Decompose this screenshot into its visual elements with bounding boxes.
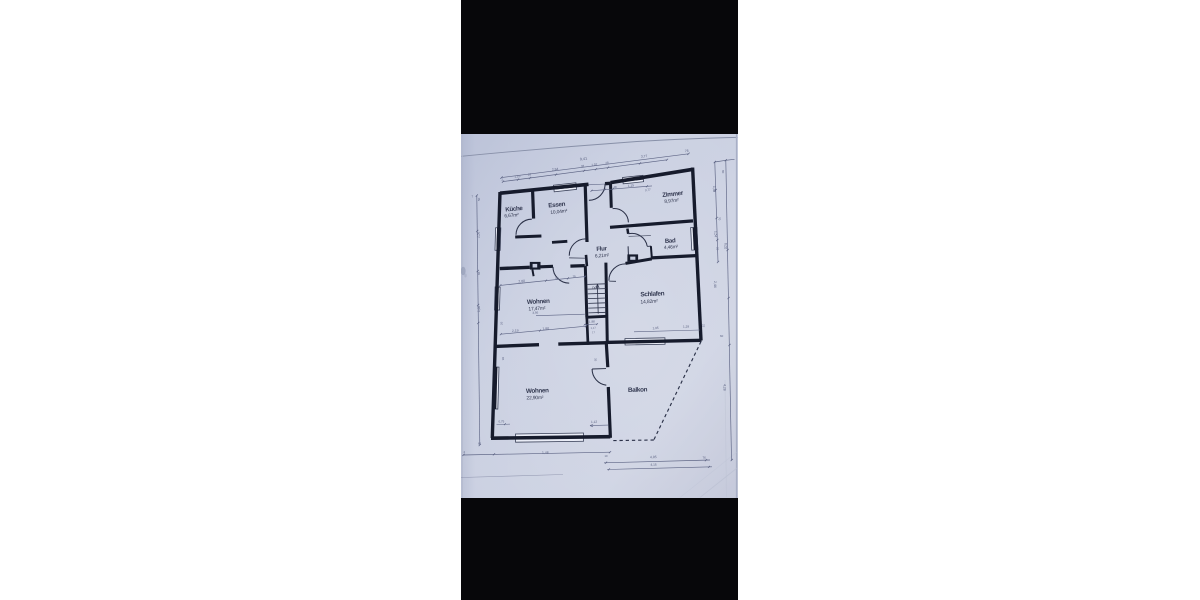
svg-text:60: 60 (720, 334, 724, 338)
svg-text:1,95: 1,95 (652, 326, 659, 330)
svg-text:1,17: 1,17 (590, 326, 596, 330)
svg-text:22: 22 (702, 324, 706, 328)
svg-text:4,15: 4,15 (650, 463, 656, 467)
svg-text:80: 80 (721, 170, 725, 174)
svg-text:14,82m²: 14,82m² (640, 299, 658, 306)
svg-text:4,46m²: 4,46m² (664, 244, 679, 251)
svg-text:2,56: 2,56 (477, 232, 481, 238)
svg-text:28: 28 (716, 247, 720, 251)
svg-text:22,90m²: 22,90m² (526, 395, 544, 402)
svg-text:86: 86 (501, 357, 505, 361)
svg-text:1,02: 1,02 (591, 162, 598, 167)
svg-text:10: 10 (605, 454, 608, 458)
svg-text:1,12: 1,12 (591, 420, 597, 424)
svg-text:2,80: 2,80 (518, 279, 525, 284)
svg-text:1,98: 1,98 (589, 319, 596, 323)
svg-text:35: 35 (593, 358, 597, 362)
svg-text:50: 50 (477, 197, 481, 201)
svg-text:1,48: 1,48 (542, 451, 549, 455)
svg-text:2,44: 2,44 (713, 281, 717, 288)
svg-text:4,28: 4,28 (722, 384, 726, 391)
svg-text:3,56: 3,56 (532, 310, 538, 314)
svg-text:6,21m²: 6,21m² (595, 252, 610, 259)
svg-text:1,54: 1,54 (714, 231, 718, 237)
svg-text:70: 70 (717, 217, 721, 221)
svg-text:2,84: 2,84 (552, 167, 559, 172)
svg-text:6,02: 6,02 (723, 243, 727, 249)
svg-text:76: 76 (702, 456, 706, 460)
svg-text:4,05: 4,05 (650, 455, 657, 459)
svg-text:26: 26 (500, 321, 504, 325)
svg-text:1,80: 1,80 (542, 326, 549, 330)
svg-text:1,38: 1,38 (712, 186, 716, 192)
svg-text:1,10: 1,10 (514, 174, 521, 179)
svg-text:1,29: 1,29 (683, 325, 690, 329)
svg-text:3,77: 3,77 (645, 188, 652, 193)
svg-text:86: 86 (477, 271, 481, 275)
svg-text:Wohnen: Wohnen (526, 387, 549, 395)
svg-text:76: 76 (685, 149, 689, 153)
svg-text:Bad: Bad (665, 237, 677, 245)
svg-text:60: 60 (478, 442, 482, 446)
svg-text:1,60: 1,60 (477, 306, 481, 312)
svg-text:DG: DG (592, 286, 598, 290)
svg-text:Schlafen: Schlafen (640, 290, 665, 298)
svg-text:3,77: 3,77 (641, 154, 648, 159)
svg-text:1,15: 1,15 (628, 183, 635, 188)
svg-text:Wohnen: Wohnen (527, 298, 550, 306)
svg-text:2,19: 2,19 (512, 329, 519, 333)
svg-text:0,75: 0,75 (498, 419, 504, 423)
svg-text:Flur: Flur (596, 245, 608, 253)
svg-text:Balkon: Balkon (628, 386, 648, 394)
